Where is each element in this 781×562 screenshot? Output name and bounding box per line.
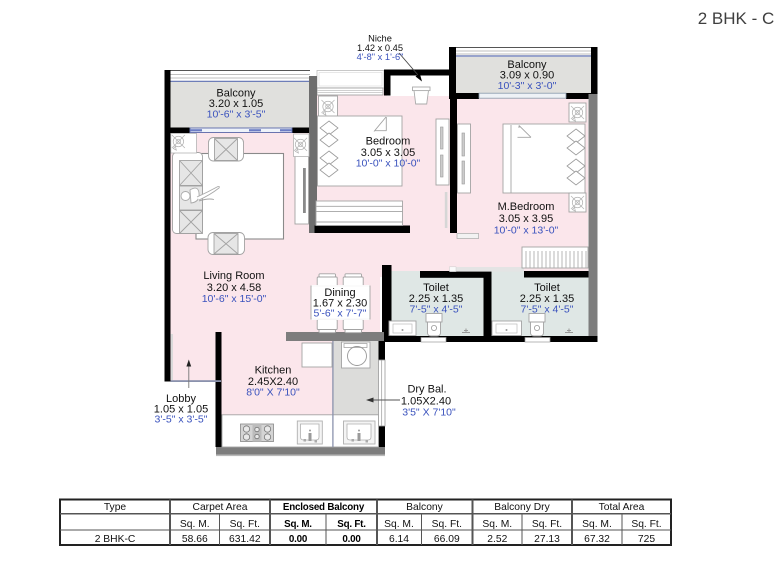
svg-text:8'0" X 7'10": 8'0" X 7'10" xyxy=(246,387,300,399)
svg-text:66.09: 66.09 xyxy=(434,534,460,545)
svg-text:Balcony: Balcony xyxy=(406,502,443,513)
svg-text:2 BHK - C: 2 BHK - C xyxy=(698,9,775,28)
svg-text:Sq. M.: Sq. M. xyxy=(582,519,612,530)
svg-text:Type: Type xyxy=(104,502,127,513)
svg-text:0.00: 0.00 xyxy=(289,534,308,545)
svg-text:2 BHK-C: 2 BHK-C xyxy=(95,534,136,545)
svg-text:0.00: 0.00 xyxy=(342,534,361,545)
svg-text:3'-5" x 3'-5": 3'-5" x 3'-5" xyxy=(155,414,208,426)
svg-text:10'-6" x 15'-0": 10'-6" x 15'-0" xyxy=(202,293,267,305)
svg-text:3'5" X 7'10": 3'5" X 7'10" xyxy=(402,407,456,419)
svg-text:Sq. Ft.: Sq. Ft. xyxy=(230,519,260,530)
svg-text:631.42: 631.42 xyxy=(229,534,261,545)
svg-text:Sq. M.: Sq. M. xyxy=(384,519,414,530)
svg-text:7'-5" x 4'-5": 7'-5" x 4'-5" xyxy=(521,304,574,316)
svg-text:Niche: Niche xyxy=(368,34,392,44)
svg-text:Sq. Ft.: Sq. Ft. xyxy=(337,519,366,530)
svg-text:Sq. M.: Sq. M. xyxy=(180,519,210,530)
svg-text:3.05 x 3.95: 3.05 x 3.95 xyxy=(499,213,553,225)
svg-text:6.14: 6.14 xyxy=(389,534,409,545)
svg-text:2.52: 2.52 xyxy=(487,534,507,545)
svg-text:27.13: 27.13 xyxy=(534,534,560,545)
svg-text:Sq. M.: Sq. M. xyxy=(284,519,312,530)
svg-text:10'-0" x 10'-0": 10'-0" x 10'-0" xyxy=(356,158,421,170)
svg-text:Sq. Ft.: Sq. Ft. xyxy=(631,519,661,530)
svg-text:67.32: 67.32 xyxy=(584,534,610,545)
svg-text:Dry Bal.: Dry Bal. xyxy=(407,384,446,396)
svg-text:Carpet Area: Carpet Area xyxy=(193,502,248,513)
svg-text:Sq. M.: Sq. M. xyxy=(482,519,512,530)
svg-text:Sq. Ft.: Sq. Ft. xyxy=(432,519,462,530)
svg-text:10'-6" x 3'-5": 10'-6" x 3'-5" xyxy=(207,109,266,121)
svg-text:Bedroom: Bedroom xyxy=(366,136,411,148)
svg-text:58.66: 58.66 xyxy=(182,534,208,545)
svg-text:725: 725 xyxy=(638,534,655,545)
svg-text:Sq. Ft.: Sq. Ft. xyxy=(532,519,562,530)
svg-text:7'-5" x 4'-5": 7'-5" x 4'-5" xyxy=(410,304,463,316)
svg-text:10'-0" x 13'-0": 10'-0" x 13'-0" xyxy=(494,225,559,237)
svg-text:4'-8" x 1'-6": 4'-8" x 1'-6" xyxy=(357,52,404,62)
svg-text:5'-6" x 7'-7": 5'-6" x 7'-7" xyxy=(314,308,367,320)
svg-text:Enclosed Balcony: Enclosed Balcony xyxy=(283,502,365,513)
svg-text:M.Bedroom: M.Bedroom xyxy=(498,201,555,213)
svg-text:Kitchen: Kitchen xyxy=(255,365,292,377)
svg-text:Balcony Dry: Balcony Dry xyxy=(494,502,550,513)
svg-text:10'-3" x 3'-0": 10'-3" x 3'-0" xyxy=(498,80,557,92)
svg-text:Living Room: Living Room xyxy=(203,270,264,282)
svg-text:Total Area: Total Area xyxy=(599,502,645,513)
